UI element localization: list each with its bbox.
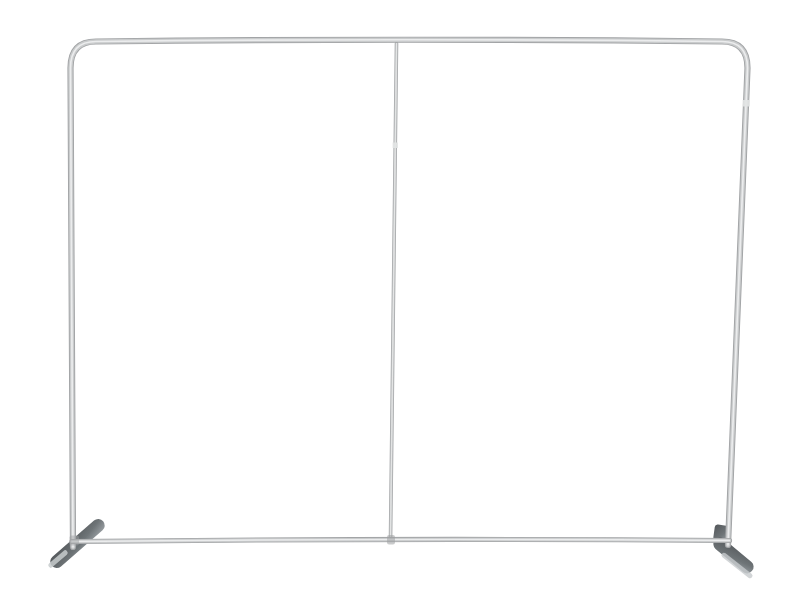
product-photo-canvas: [0, 0, 800, 600]
center-bottom-junction: [387, 535, 395, 545]
left-bottom-junction: [70, 536, 80, 546]
right-upright-joint: [743, 100, 750, 107]
white-backdrop: [0, 0, 800, 600]
bottom-bar: [72, 539, 730, 541]
display-frame-photo: [0, 0, 800, 600]
center-pole-joint: [393, 143, 398, 149]
